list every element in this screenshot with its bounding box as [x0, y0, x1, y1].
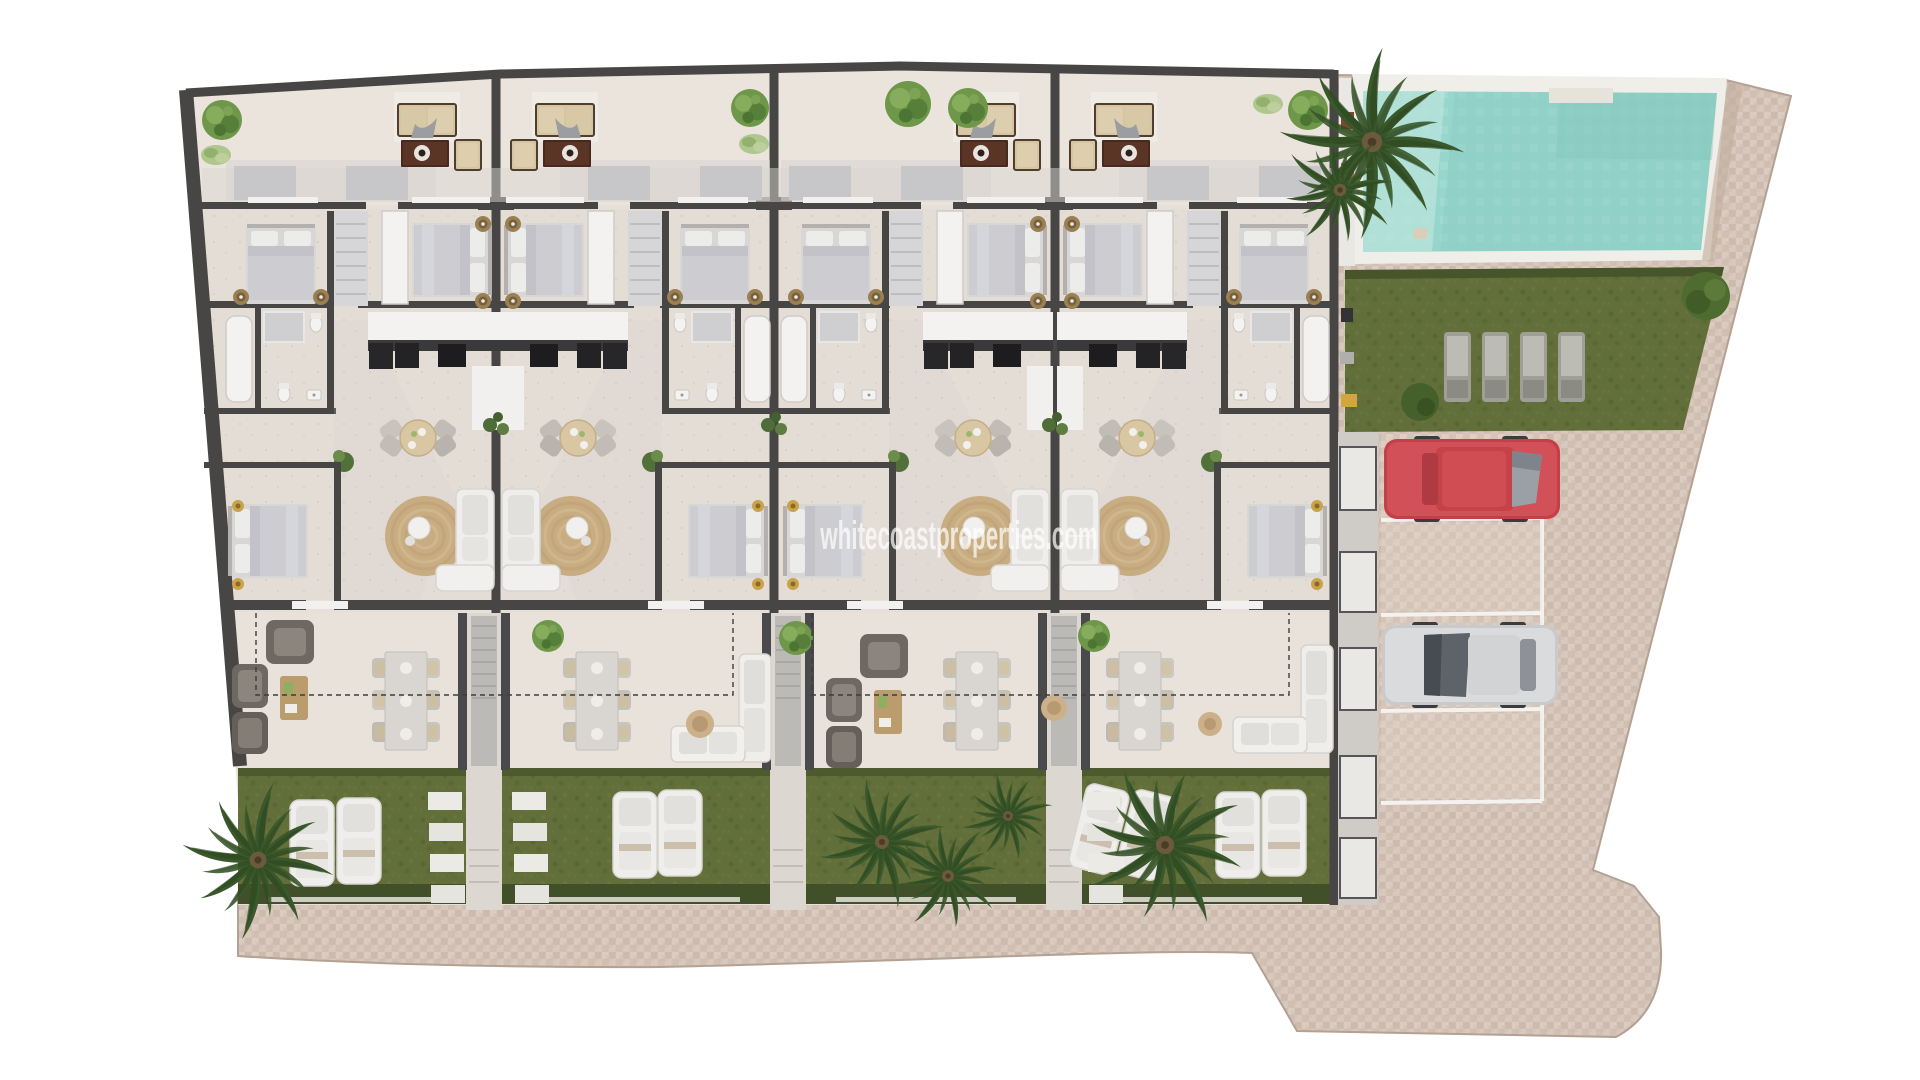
- svg-text:whitecoastproperties.com: whitecoastproperties.com: [820, 513, 1098, 557]
